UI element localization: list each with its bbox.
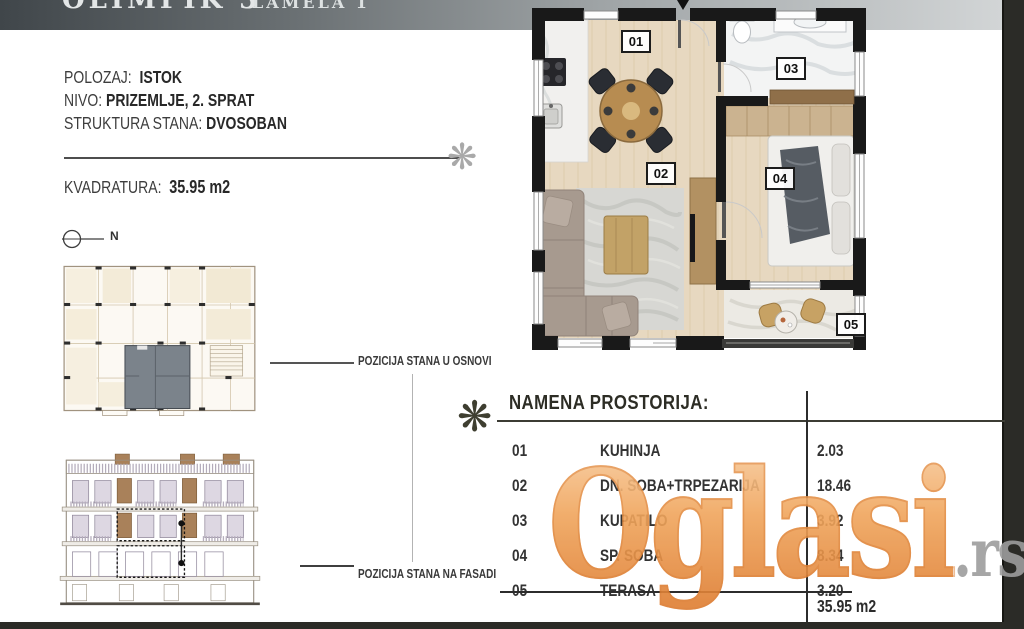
room-label-04: 04 [765, 167, 795, 190]
apartment-floor-plan: 01 02 03 04 05 [518, 0, 880, 365]
table-row: 02 DN. SOBA+TRPEZARIJA 18.46 [505, 476, 1005, 506]
table-title-underline [497, 420, 1005, 422]
polozaj-line: POLOZAJ: ISTOK [64, 66, 182, 89]
struktura-line: STRUKTURA STANA: DVOSOBAN [64, 112, 287, 135]
table-row: 01 KUHINJA 2.03 [505, 441, 1005, 471]
facade-elevation-drawing [58, 450, 262, 613]
snowflake-ornament-icon: ❋ [447, 140, 477, 176]
caption-connector-line [412, 374, 413, 562]
highlighted-unit [125, 346, 190, 409]
table-total-line [500, 591, 852, 593]
table-row: 03 KUPATILO 3.92 [505, 511, 1005, 541]
nivo-line: NIVO: PRIZEMLJE, 2. SPRAT [64, 89, 254, 112]
table-title: NAMENA PROSTORIJA: [509, 392, 747, 415]
floor-plan-render [518, 0, 880, 365]
caption1-leader-line [270, 362, 354, 364]
table-ornament-icon: ❋ [457, 396, 492, 438]
north-arrow [677, 0, 689, 10]
table-row: 05 TERASA 3.20 [505, 581, 1005, 611]
room-label-01: 01 [621, 30, 651, 53]
compass-north-label: N [110, 229, 119, 243]
site-plan-drawing [58, 256, 266, 422]
room-label-02: 02 [646, 162, 676, 185]
bottom-border [0, 622, 1024, 629]
lamela-subtitle: LAMELA 1 [252, 0, 370, 12]
plan-position-caption: POZICIJA STANA U OSNOVI [358, 354, 525, 368]
listing-sheet: OLIMPIK 3 LAMELA 1 POLOZAJ: ISTOK NIVO: … [0, 0, 1024, 629]
caption2-leader-line [300, 565, 354, 567]
compass-icon [60, 228, 106, 250]
project-title: OLIMPIK 3 [62, 0, 261, 15]
room-label-05: 05 [836, 313, 866, 336]
room-label-03: 03 [776, 57, 806, 80]
apartment-details: POLOZAJ: ISTOK NIVO: PRIZEMLJE, 2. SPRAT… [64, 66, 343, 135]
table-total: 35.95 m2 [817, 596, 891, 617]
right-border [1002, 0, 1024, 629]
table-row: 04 SP. SOBA 8.34 [505, 546, 1005, 576]
divider-line [64, 157, 460, 159]
kvadratura: KVADRATURA: 35.95 m2 [64, 176, 272, 199]
